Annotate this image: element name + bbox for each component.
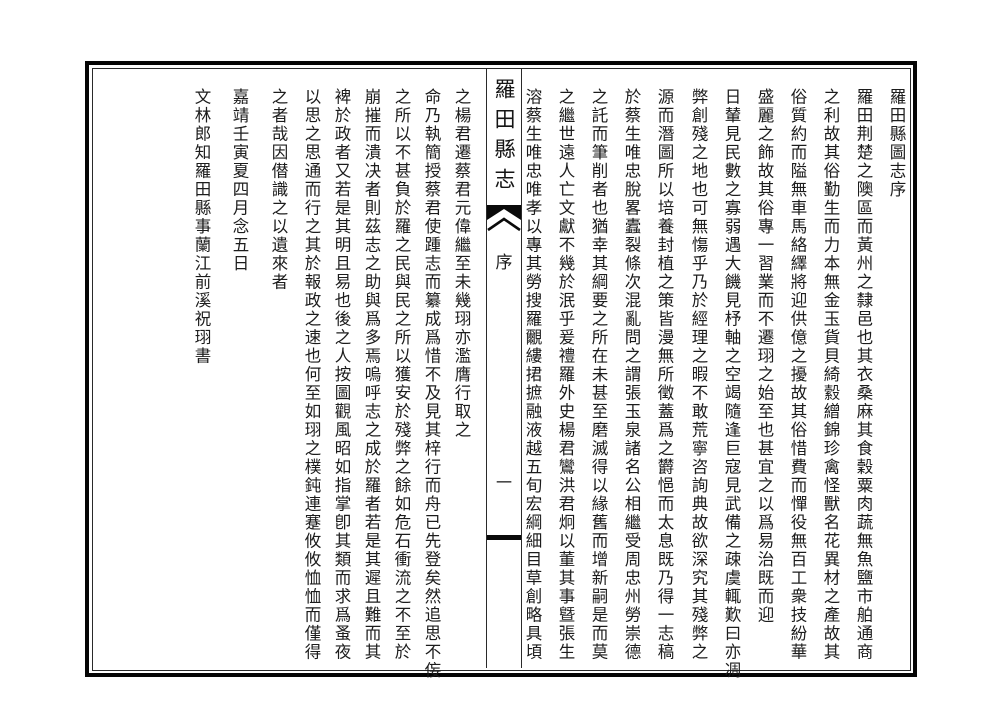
text-column: 溶蔡生唯忠唯孝以專其勞搜羅覼縷捃摭融液越五旬宏綱細目草創略具頃 xyxy=(518,88,546,662)
gutter-black-bar xyxy=(487,535,521,540)
text-column: 裨於政者又若是其明且易也後之人按圖觀風昭如指掌卽其類而求爲蚤夜 xyxy=(327,88,355,662)
text-column: 文林郎知羅田縣事蘭江前溪祝珝書 xyxy=(187,88,215,366)
book-title: 羅田縣志 xyxy=(487,78,521,198)
section-label: 序 xyxy=(496,248,513,273)
text-column: 崩摧而潰决者則茲志之助與爲多焉嗚呼志之成於羅者若是其遲且難而其 xyxy=(357,88,385,662)
text-column: 之者哉因僣識之以遺來者 xyxy=(264,88,292,292)
text-column: 弊創殘之地也可無慯乎乃於經理之暇不敢荒寧咨詢典故欲深究其殘弊之 xyxy=(684,88,712,662)
text-column: 命乃執簡授蔡君使踵志而纂成爲惜不及見其梓行而舟已先登矣然追思不侫 xyxy=(417,88,445,680)
text-column: 之利故其俗勤生而力本無金玉貨貝綺縠繒錦珍禽怪獸名花異材之產故其 xyxy=(816,88,844,662)
text-column: 以思之思通而行之其於報政之速也何至如珝之樸鈍連蹇攸攸恤恤而僅得 xyxy=(297,88,325,662)
fishtail-icon xyxy=(487,205,521,233)
text-column: 之楊君遷蔡君元偉繼至未幾珝亦濫膺行取之 xyxy=(447,88,475,440)
text-column: 俗質約而隘無車馬絡繹將迎供億之擾故其俗惜費而憚役無百工衆技紛華 xyxy=(783,88,811,662)
text-column: 日輦見民數之寡弱遇大饑見杼軸之空竭隨逢巨寇見武備之疎虞輒歎曰亦凋 xyxy=(717,88,745,680)
text-column: 源而潛圖所以培養封植之策皆漫無所徵蓋爲之欝悒而太息既乃得一志稿 xyxy=(650,88,678,662)
text-column: 之所以不甚負於羅之民與民之所以獲安於殘弊之餘如危石衝流之不至於 xyxy=(387,88,415,662)
text-column: 羅田荆楚之隩區而黃州之隸邑也其衣桑麻其食穀粟肉蔬無魚鹽市舶通商 xyxy=(849,88,877,662)
text-column: 於蔡生唯忠脫畧蠹裂條次混亂問之謂張玉泉諸名公相繼受周忠州勞崇德 xyxy=(617,88,645,662)
text-column: 羅田縣圖志序 xyxy=(882,88,910,199)
text-column: 盛麗之飾故其俗專一習業而不遷珝之始至也甚宜之以爲易治既而迎 xyxy=(750,88,778,625)
text-column: 之繼世遠人亡文獻不幾於泯乎爰禮羅外史楊君鸞洪君炯以董其事曁張生 xyxy=(551,88,579,662)
text-column: 之託而筆削者也猶幸其綱要之所在未甚至磨滅得以緣舊而增新嗣是而莫 xyxy=(584,88,612,662)
folio-number: 一 xyxy=(496,469,512,493)
text-column: 嘉靖壬寅夏四月念五日 xyxy=(225,88,253,273)
gutter-strip: 羅田縣志 序 一 xyxy=(486,69,522,668)
